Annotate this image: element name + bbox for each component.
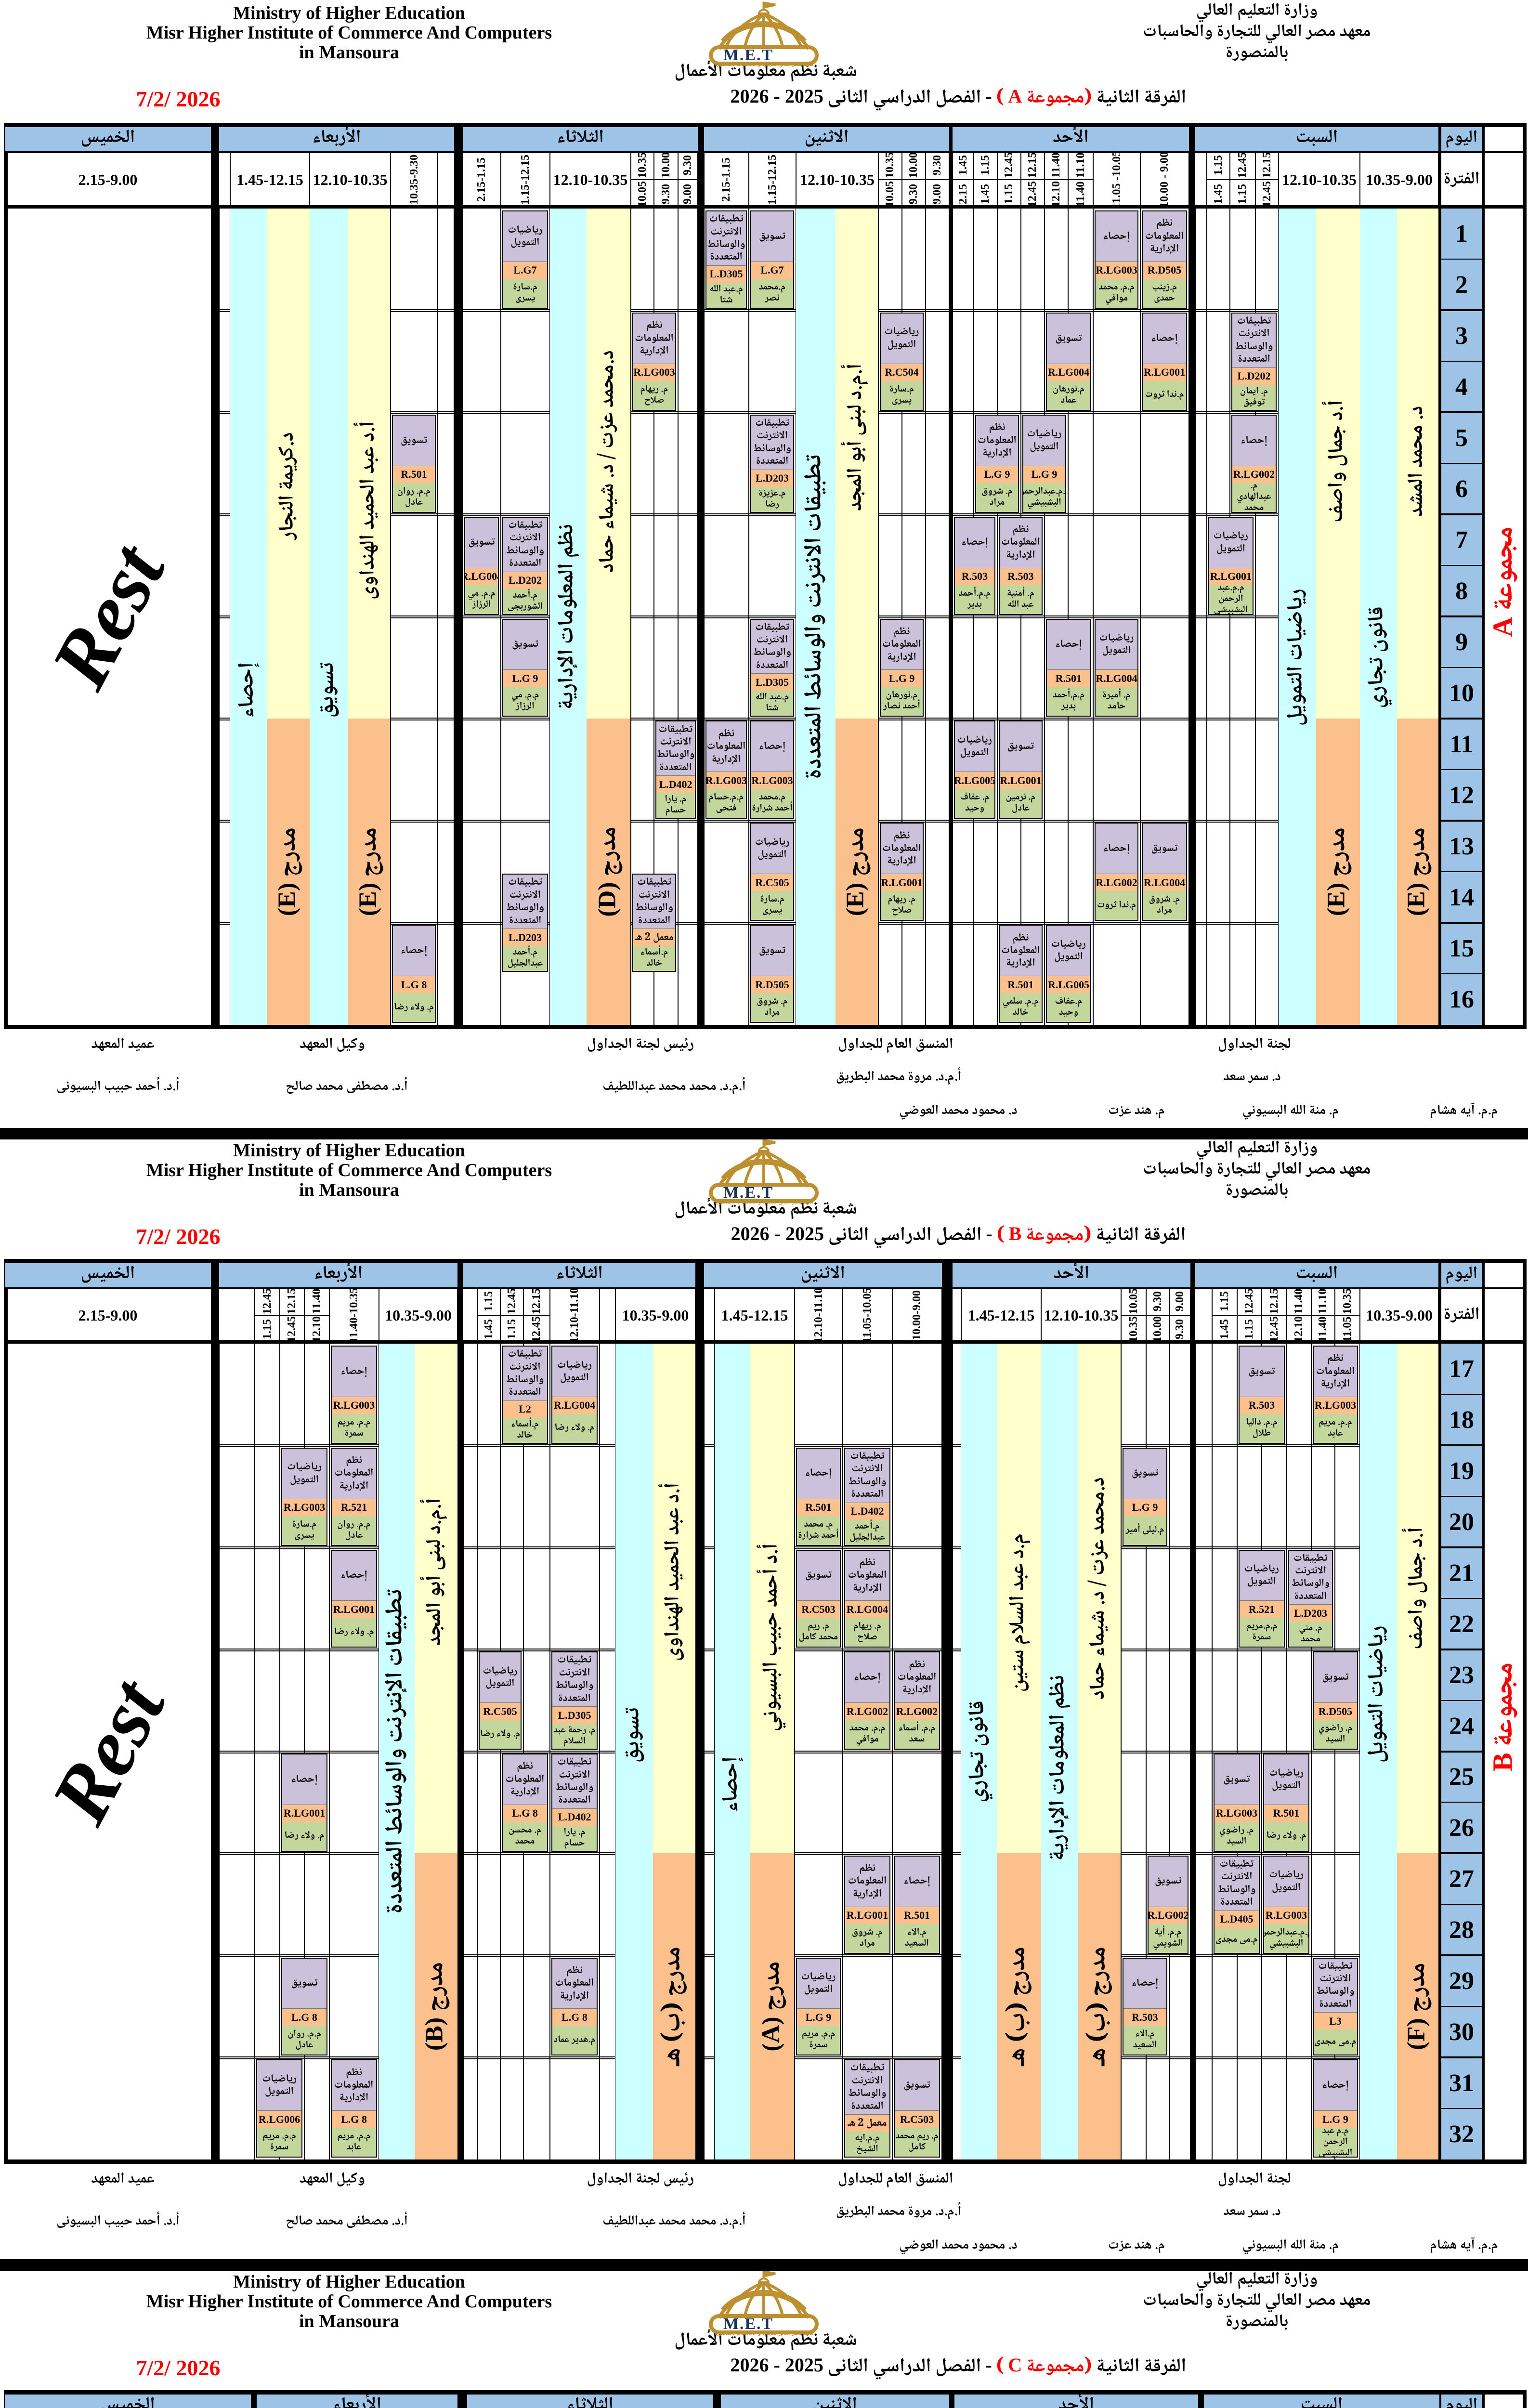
svg-text:معهد مصر العالى للتجارة و الحا: معهد مصر العالى للتجارة و الحاسبات بالمن…	[714, 60, 814, 69]
svg-text:معهد مصر العالى للتجارة و الحا: معهد مصر العالى للتجارة و الحاسبات بالمن…	[714, 2329, 814, 2338]
svg-text:معهد مصر العالى للتجارة و الحا: معهد مصر العالى للتجارة و الحاسبات بالمن…	[714, 1197, 814, 1206]
